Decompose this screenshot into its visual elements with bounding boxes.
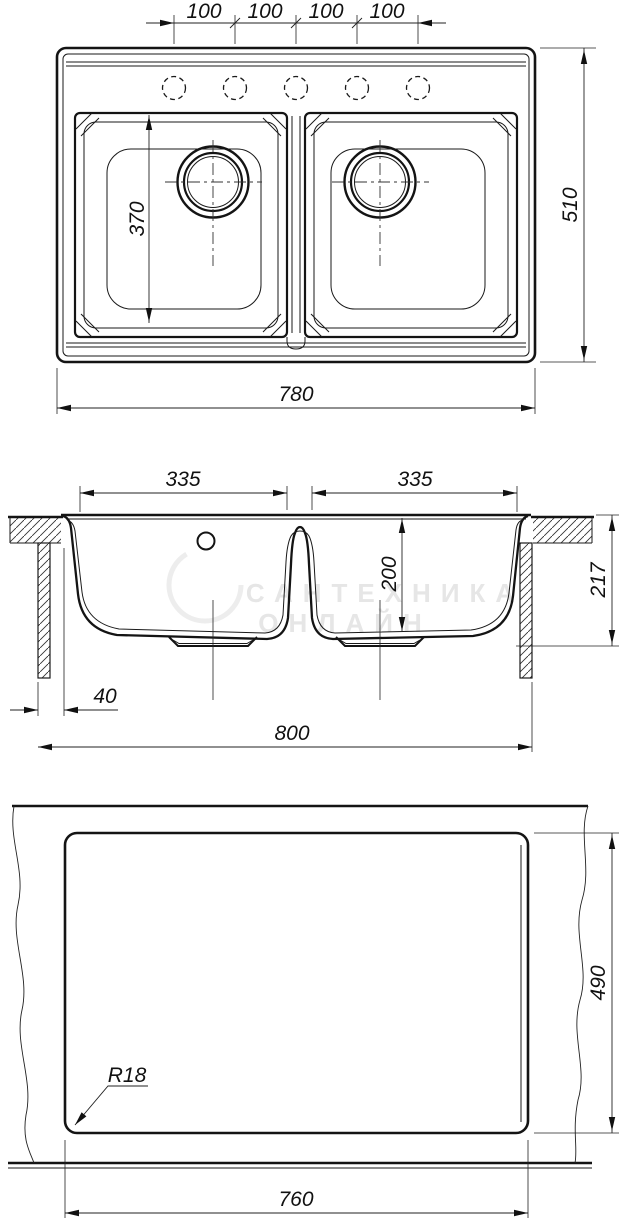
watermark-logo-arc (169, 549, 241, 621)
top-view: 100 100 100 100 510 780 370 (57, 0, 596, 414)
deck-back-edge (66, 62, 526, 66)
overflow-hole (198, 533, 215, 550)
drain-centerlines (332, 140, 429, 266)
bowl-divider (287, 116, 305, 349)
faucet-hole (346, 77, 369, 100)
drawing-sheet: 100 100 100 100 510 780 370 (0, 0, 620, 1220)
right-bowl (305, 113, 517, 337)
faucet-hole (163, 77, 186, 100)
dim-label-800: 800 (274, 722, 309, 745)
faucet-hole (224, 77, 247, 100)
dim-label-100-3: 100 (308, 0, 343, 23)
dim-offset-40: 40 (10, 548, 118, 716)
right-drain (332, 140, 429, 266)
faucet-hole (407, 77, 430, 100)
dim-label-100-2: 100 (247, 0, 282, 23)
dim-bowl-left-335: 335 (80, 468, 287, 512)
drain-centerlines (165, 140, 262, 266)
dim-width-780: 780 (57, 368, 535, 414)
dim-label-370: 370 (126, 201, 149, 236)
cabinet-leg-left (38, 543, 50, 678)
cabinet-leg-right (520, 543, 532, 678)
cutout-view: R18 490 760 (8, 806, 619, 1218)
dim-bowl-right-335: 335 (312, 468, 517, 512)
dim-label-100-1: 100 (186, 0, 221, 23)
deck-front-edge (66, 343, 526, 347)
left-drain (165, 140, 262, 266)
countertop-right (531, 517, 594, 543)
dim-label-r18: R18 (108, 1064, 147, 1087)
dim-label-217: 217 (587, 561, 610, 598)
dim-label-200: 200 (378, 556, 401, 592)
cutout-rect (65, 833, 528, 1133)
faucet-hole (285, 77, 308, 100)
dim-cutout-width-760: 760 (65, 1140, 528, 1218)
dim-label-100-4: 100 (369, 0, 404, 23)
dim-hole-spacing: 100 100 100 100 (146, 0, 446, 44)
break-line-left (13, 806, 34, 1163)
dim-label-490: 490 (587, 965, 610, 1000)
dim-label-780: 780 (278, 383, 313, 406)
dim-bowl-length-370: 370 (126, 115, 152, 323)
countertop-left (8, 517, 63, 543)
dim-label-335-left: 335 (165, 468, 200, 491)
dim-depth-510: 510 (540, 48, 596, 362)
radius-callout: R18 (75, 1064, 148, 1125)
technical-drawing-canvas: 100 100 100 100 510 780 370 (0, 0, 620, 1220)
watermark-text-2: ОНЛАЙН (258, 608, 431, 638)
section-view: САНТЕХНИКА ОНЛАЙН (8, 468, 619, 752)
dim-label-335-right: 335 (397, 468, 432, 491)
dim-label-760: 760 (278, 1188, 313, 1211)
dim-label-510: 510 (559, 187, 582, 222)
watermark: САНТЕХНИКА ОНЛАЙН (169, 549, 524, 638)
left-bowl (75, 113, 287, 337)
faucet-holes (163, 77, 430, 100)
dim-cutout-depth-490: 490 (534, 833, 619, 1133)
dim-label-40: 40 (93, 685, 117, 708)
